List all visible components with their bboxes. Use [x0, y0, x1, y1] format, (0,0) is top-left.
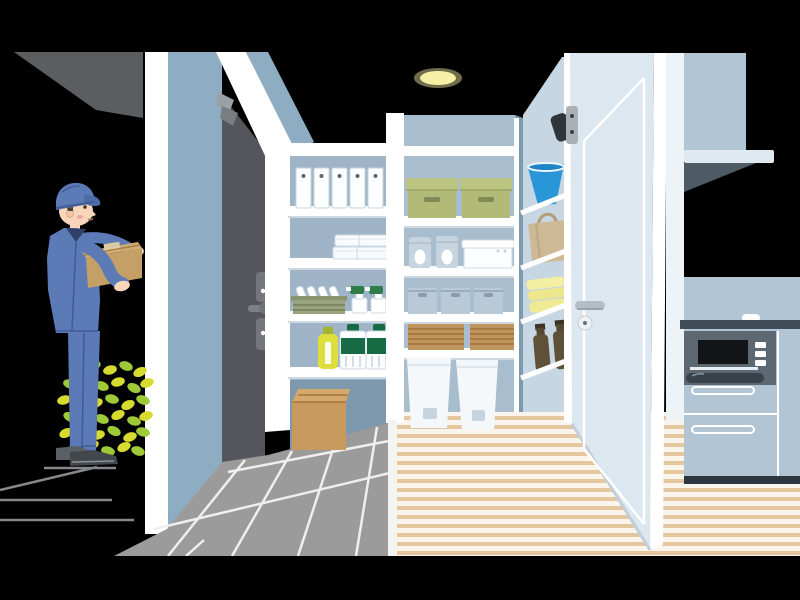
- fabric-storage-cubes: [408, 288, 503, 314]
- floor-threshold-strip: [388, 420, 397, 557]
- toe-kick: [684, 476, 800, 484]
- ceiling-light: [414, 68, 462, 88]
- floor-cardboard-box: [292, 389, 350, 450]
- center-unit-top-board: [404, 146, 518, 156]
- doorway-wall-gap: [666, 53, 684, 421]
- sealed-container: [462, 240, 514, 268]
- eye: [83, 205, 87, 209]
- oven-button: [755, 342, 766, 348]
- green-label-bottle: [340, 324, 366, 369]
- detergent-bottles: [318, 324, 392, 369]
- spray-bottles: [346, 286, 386, 313]
- built-in-oven: [684, 331, 776, 385]
- exterior-wall-edge: [145, 52, 170, 534]
- pantry-center-post: [386, 113, 404, 423]
- storage-container-stacks: [333, 235, 387, 259]
- pantry-center-shelf-unit: [404, 115, 518, 430]
- entry-frame-vertical: [265, 150, 290, 432]
- backsplash-wall: [684, 277, 800, 322]
- counter-edge: [680, 320, 800, 329]
- hood-shelf: [684, 150, 774, 163]
- illustration-stage: [0, 0, 800, 600]
- file-binders: [296, 168, 383, 208]
- entry-jamb: [168, 52, 222, 544]
- oven-button: [755, 360, 766, 366]
- left-unit-top-board: [268, 143, 398, 156]
- scene-canvas: [0, 0, 800, 600]
- oven-button: [755, 351, 766, 357]
- range-hood-cabinet: [684, 53, 746, 152]
- legs: [68, 331, 100, 452]
- bottom-mask: [0, 556, 800, 600]
- corner-edge-highlight: [514, 118, 519, 412]
- rattan-cases: [408, 324, 518, 350]
